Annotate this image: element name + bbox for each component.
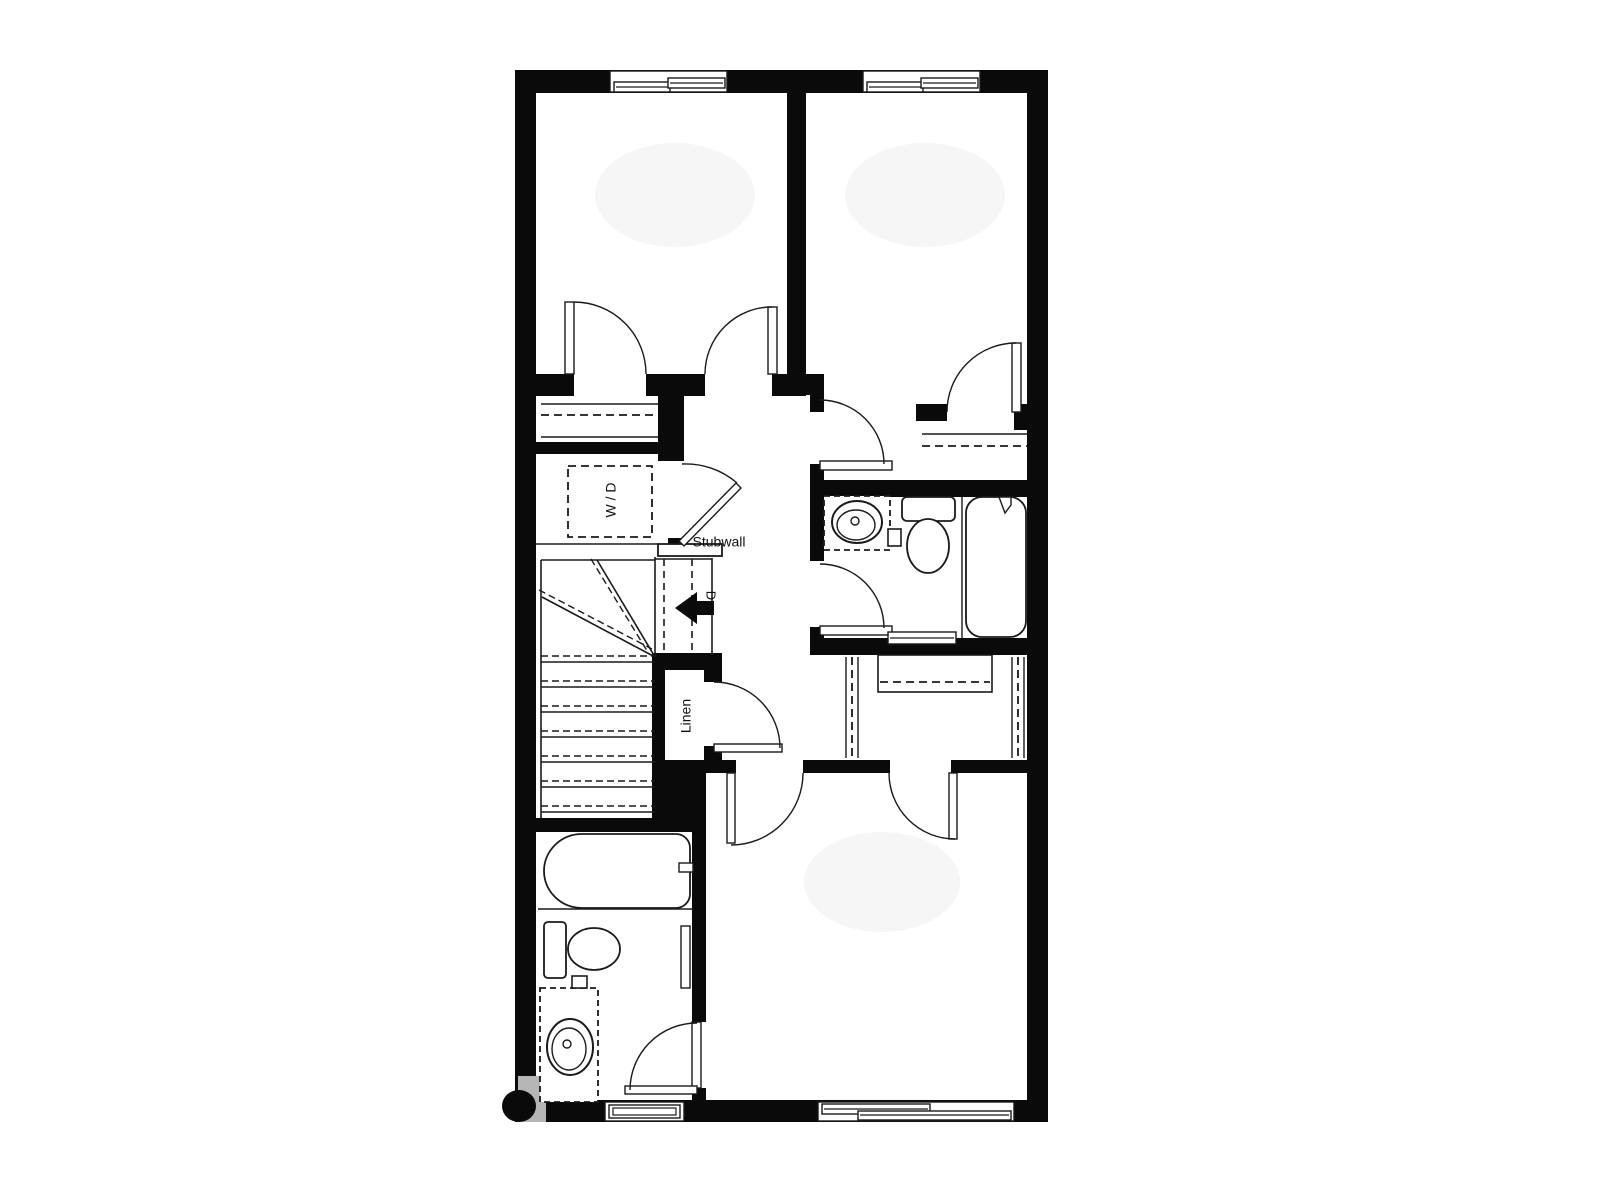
bed2-closet-door-leaf bbox=[1012, 343, 1021, 412]
bed3-west-wall bbox=[692, 832, 706, 1022]
bed3-closet-shelf bbox=[878, 655, 992, 692]
bed1-south-wall-a bbox=[530, 374, 574, 396]
floor-plan-page: W / DStubwallDnLinen bbox=[0, 0, 1600, 1200]
hall-east-post-a bbox=[810, 385, 824, 412]
bath1-door-jamb bbox=[692, 1022, 701, 1088]
bath1-north-wall bbox=[530, 818, 706, 832]
bed2-closet-door-arc bbox=[947, 343, 1016, 412]
stair-winder-1-nosing bbox=[539, 590, 652, 649]
bath2-toilet-bowl bbox=[907, 519, 949, 573]
washer-dryer-label: W / D bbox=[603, 483, 619, 518]
bed3-entry-door-leaf bbox=[727, 773, 735, 843]
bed1-entry-door-arc bbox=[705, 307, 772, 374]
bed3-north-wall-b bbox=[803, 760, 890, 773]
bed1-south-wall-b bbox=[646, 374, 705, 396]
room-ghost-bedroom1 bbox=[595, 143, 755, 247]
linen-door-arc bbox=[714, 682, 780, 748]
bed3-closet-door-leaf bbox=[949, 773, 957, 839]
stair-winder-1 bbox=[542, 597, 655, 657]
linen-door-leaf bbox=[714, 744, 782, 752]
linen-east-post-top bbox=[704, 653, 722, 682]
bath1-bathtub bbox=[544, 834, 690, 908]
bed2-entry-door-arc bbox=[820, 400, 884, 464]
bed1-entry-door-leaf bbox=[768, 307, 777, 374]
floor-plan-svg: W / DStubwallDnLinen bbox=[0, 0, 1600, 1200]
bed2-entry-door-leaf bbox=[820, 461, 892, 470]
bath1-door-leaf bbox=[625, 1086, 697, 1094]
room-ghost-bedroom3 bbox=[804, 832, 960, 932]
outer-wall-right bbox=[1027, 70, 1048, 1122]
bed2-closet-north-wall bbox=[916, 404, 947, 421]
bed1-closet-door-arc bbox=[574, 302, 646, 374]
bed3-closet-door-arc bbox=[889, 773, 955, 839]
bath2-toilet-tank bbox=[902, 497, 955, 521]
outer-wall-left bbox=[515, 70, 536, 1122]
down-label: Dn bbox=[704, 591, 719, 608]
window-bath1-sash-inner bbox=[613, 1108, 676, 1115]
bath2-door-arc bbox=[820, 564, 884, 628]
bedroom-divider-wall bbox=[787, 88, 806, 378]
bath1-toilet-tank bbox=[544, 922, 566, 978]
bath2-bathtub bbox=[966, 497, 1026, 637]
bath1-toilet-bowl bbox=[568, 928, 620, 970]
corner-artifact-blob bbox=[502, 1090, 536, 1122]
stair-winder-2-nosing bbox=[591, 559, 649, 654]
bath2-north-wall bbox=[810, 480, 1048, 497]
bed3-entry-door-arc bbox=[731, 773, 803, 845]
room-ghost-bedroom2 bbox=[845, 143, 1005, 247]
bath1-towel-bar bbox=[681, 926, 690, 988]
wd-door-swing-arc bbox=[682, 464, 737, 483]
bed3-north-wall-c bbox=[951, 760, 1048, 773]
bed1-closet-door-leaf bbox=[565, 302, 574, 374]
linen-label: Linen bbox=[678, 699, 694, 733]
bed1-closet-south-wall bbox=[530, 442, 682, 454]
linen-south-block bbox=[652, 773, 706, 823]
hall-east-wall bbox=[810, 497, 824, 561]
stubwall-label: Stubwall bbox=[693, 534, 746, 550]
bath1-door-arc bbox=[630, 1023, 697, 1090]
hall-south-wall bbox=[652, 760, 736, 773]
bath2-door-leaf bbox=[820, 626, 892, 635]
bath1-tub-faucet bbox=[679, 863, 693, 872]
bath2-vanity-faucet bbox=[888, 529, 901, 546]
bath1-vanity-faucet bbox=[572, 976, 587, 988]
